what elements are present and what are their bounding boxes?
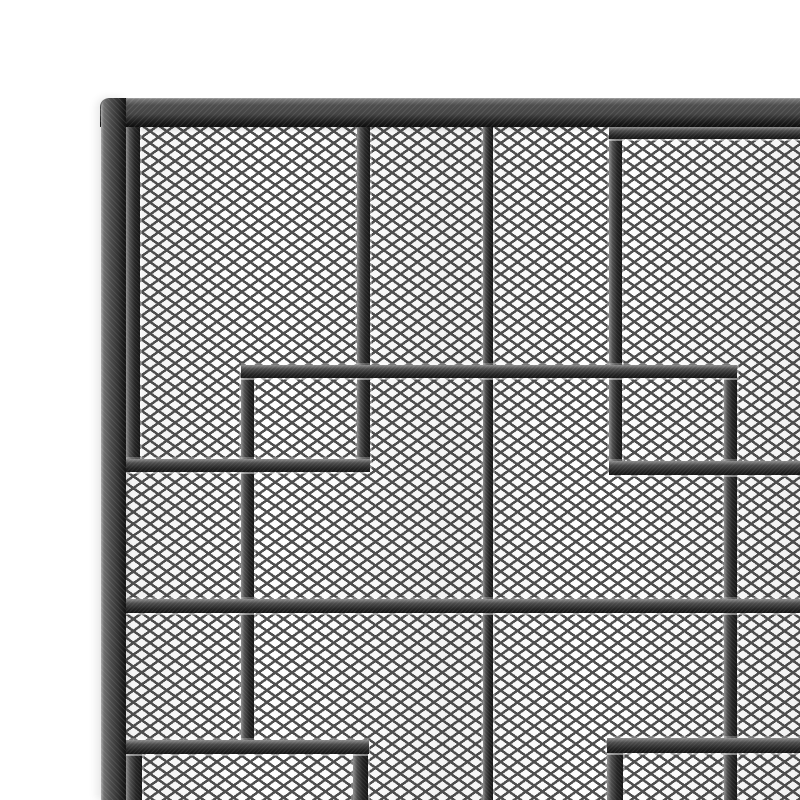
outer-top-rail-bar: [100, 98, 800, 127]
rect-c-bottom-bar: [609, 461, 800, 475]
fire-screen-photo: Close-up of the top-left corner of a bla…: [0, 0, 800, 800]
rect-b-left-bar: [241, 365, 254, 747]
photo-caption: Close-up of the top-left corner of a bla…: [0, 0, 1, 1]
rect-a-right-bar: [357, 126, 370, 472]
rect-d-top-bar: [607, 738, 800, 753]
rect-b-top-bar: [241, 365, 737, 378]
center-mullion-bar: [483, 124, 493, 800]
rect-b-right-bar: [724, 365, 737, 800]
rect-a-bottom-bar: [126, 459, 370, 472]
rect-c-left-bar: [609, 125, 622, 475]
outer-left-stile-bar: [101, 98, 126, 800]
rect-e-top-bar: [125, 740, 369, 754]
rect-c-top-bar: [609, 127, 800, 139]
rect-a-left-bar: [126, 126, 140, 472]
middle-rail-bar: [125, 599, 800, 613]
